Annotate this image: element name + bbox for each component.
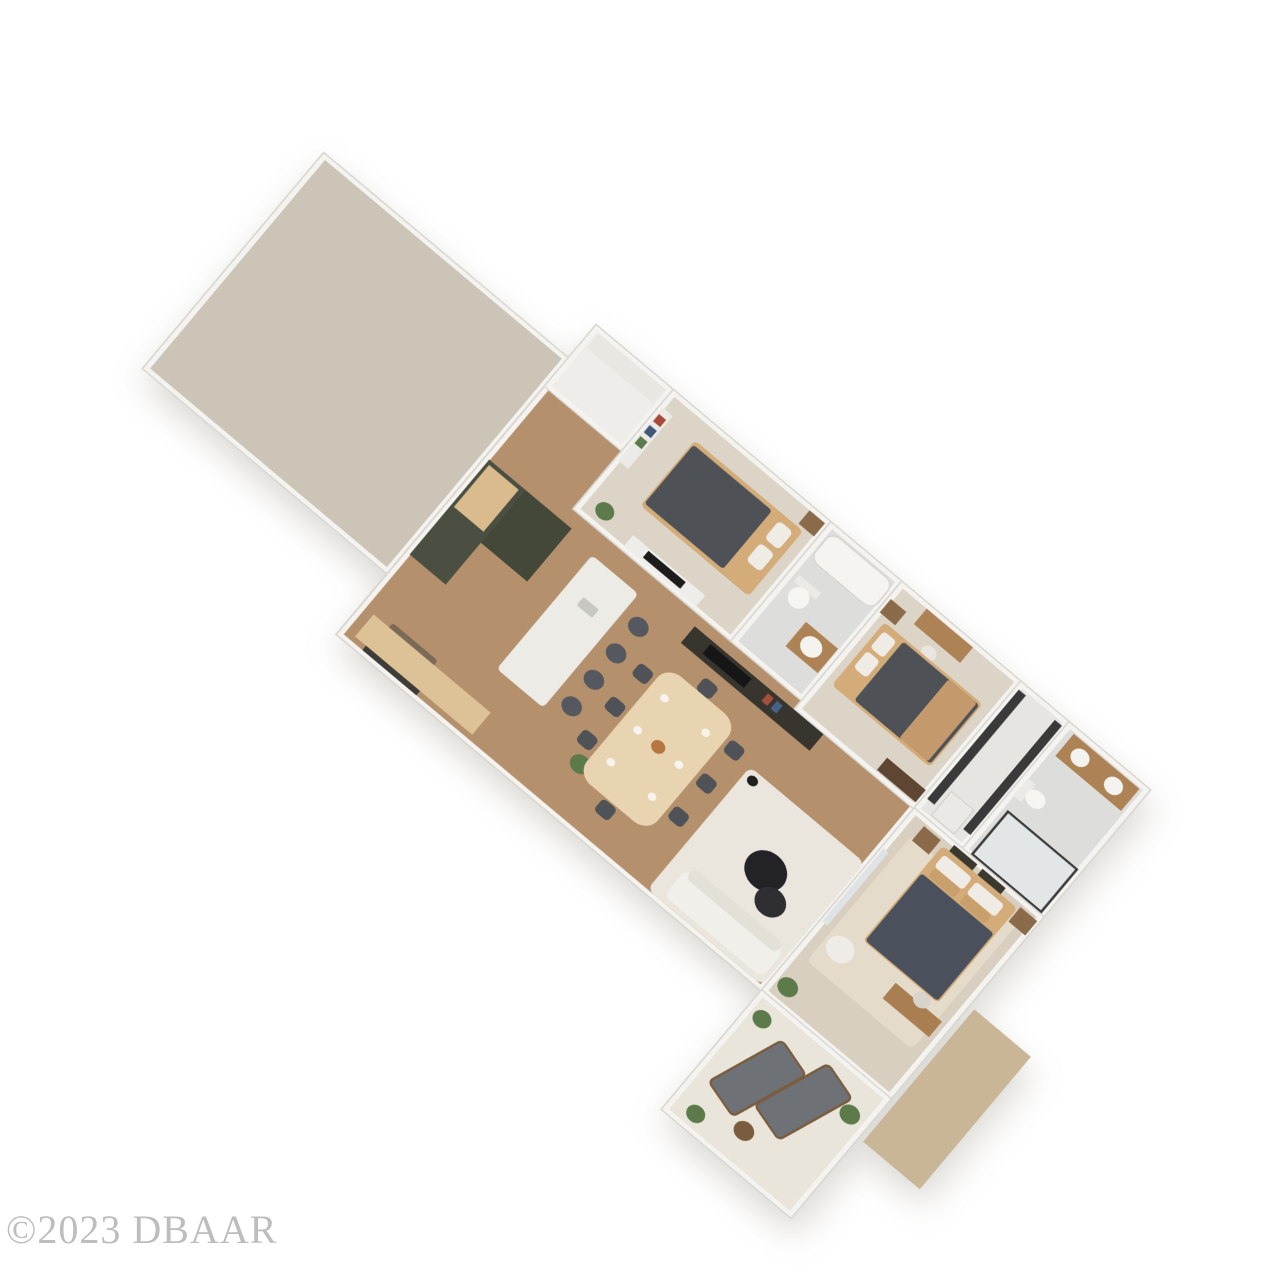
floorplan-render-canvas: ©2023 DBAAR	[0, 0, 1280, 1280]
floorplan-3d	[0, 120, 1214, 1279]
watermark: ©2023 DBAAR	[6, 1206, 277, 1253]
